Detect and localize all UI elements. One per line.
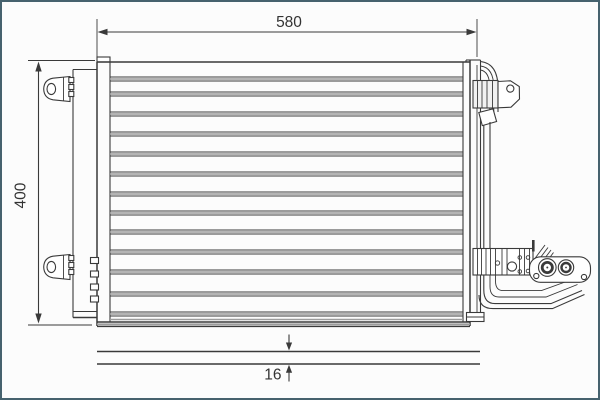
depth-dimension-label: 16 — [264, 367, 281, 384]
header-clip — [91, 271, 99, 277]
header-clip — [91, 284, 99, 290]
width-dimension-label: 580 — [276, 14, 302, 31]
screw-hole — [534, 273, 539, 278]
pipe-elbow — [479, 109, 497, 126]
dimension-depth: 16 — [264, 335, 292, 384]
screw-hole — [581, 274, 586, 279]
condenser-side-view — [97, 352, 480, 365]
arrowhead-down-icon — [286, 343, 292, 351]
bracket-hole — [47, 83, 56, 94]
arrowhead-up-icon — [286, 365, 292, 373]
left-tank — [73, 70, 97, 318]
header-clip — [91, 258, 99, 264]
bracket-hole — [507, 85, 514, 92]
pipe-clamp-block — [473, 81, 498, 109]
arrowhead-down-icon — [35, 314, 41, 324]
arrowhead-left-icon — [98, 29, 108, 36]
condenser-dimensional-drawing: 580 400 — [0, 0, 600, 400]
core-tubes — [110, 77, 463, 316]
bracket-hole — [47, 261, 56, 272]
lower-left-mounting-bracket — [44, 255, 74, 280]
arrowhead-right-icon — [467, 29, 477, 36]
technical-drawing-page: 580 400 — [0, 0, 600, 400]
connector-plate — [530, 257, 591, 283]
header-clip — [91, 296, 99, 302]
condenser-front-view — [44, 57, 591, 326]
core — [91, 57, 471, 326]
arrowhead-up-icon — [35, 62, 41, 72]
dimension-width: 580 — [97, 14, 477, 58]
height-dimension-label: 400 — [13, 182, 30, 208]
upper-left-mounting-bracket — [44, 77, 74, 102]
